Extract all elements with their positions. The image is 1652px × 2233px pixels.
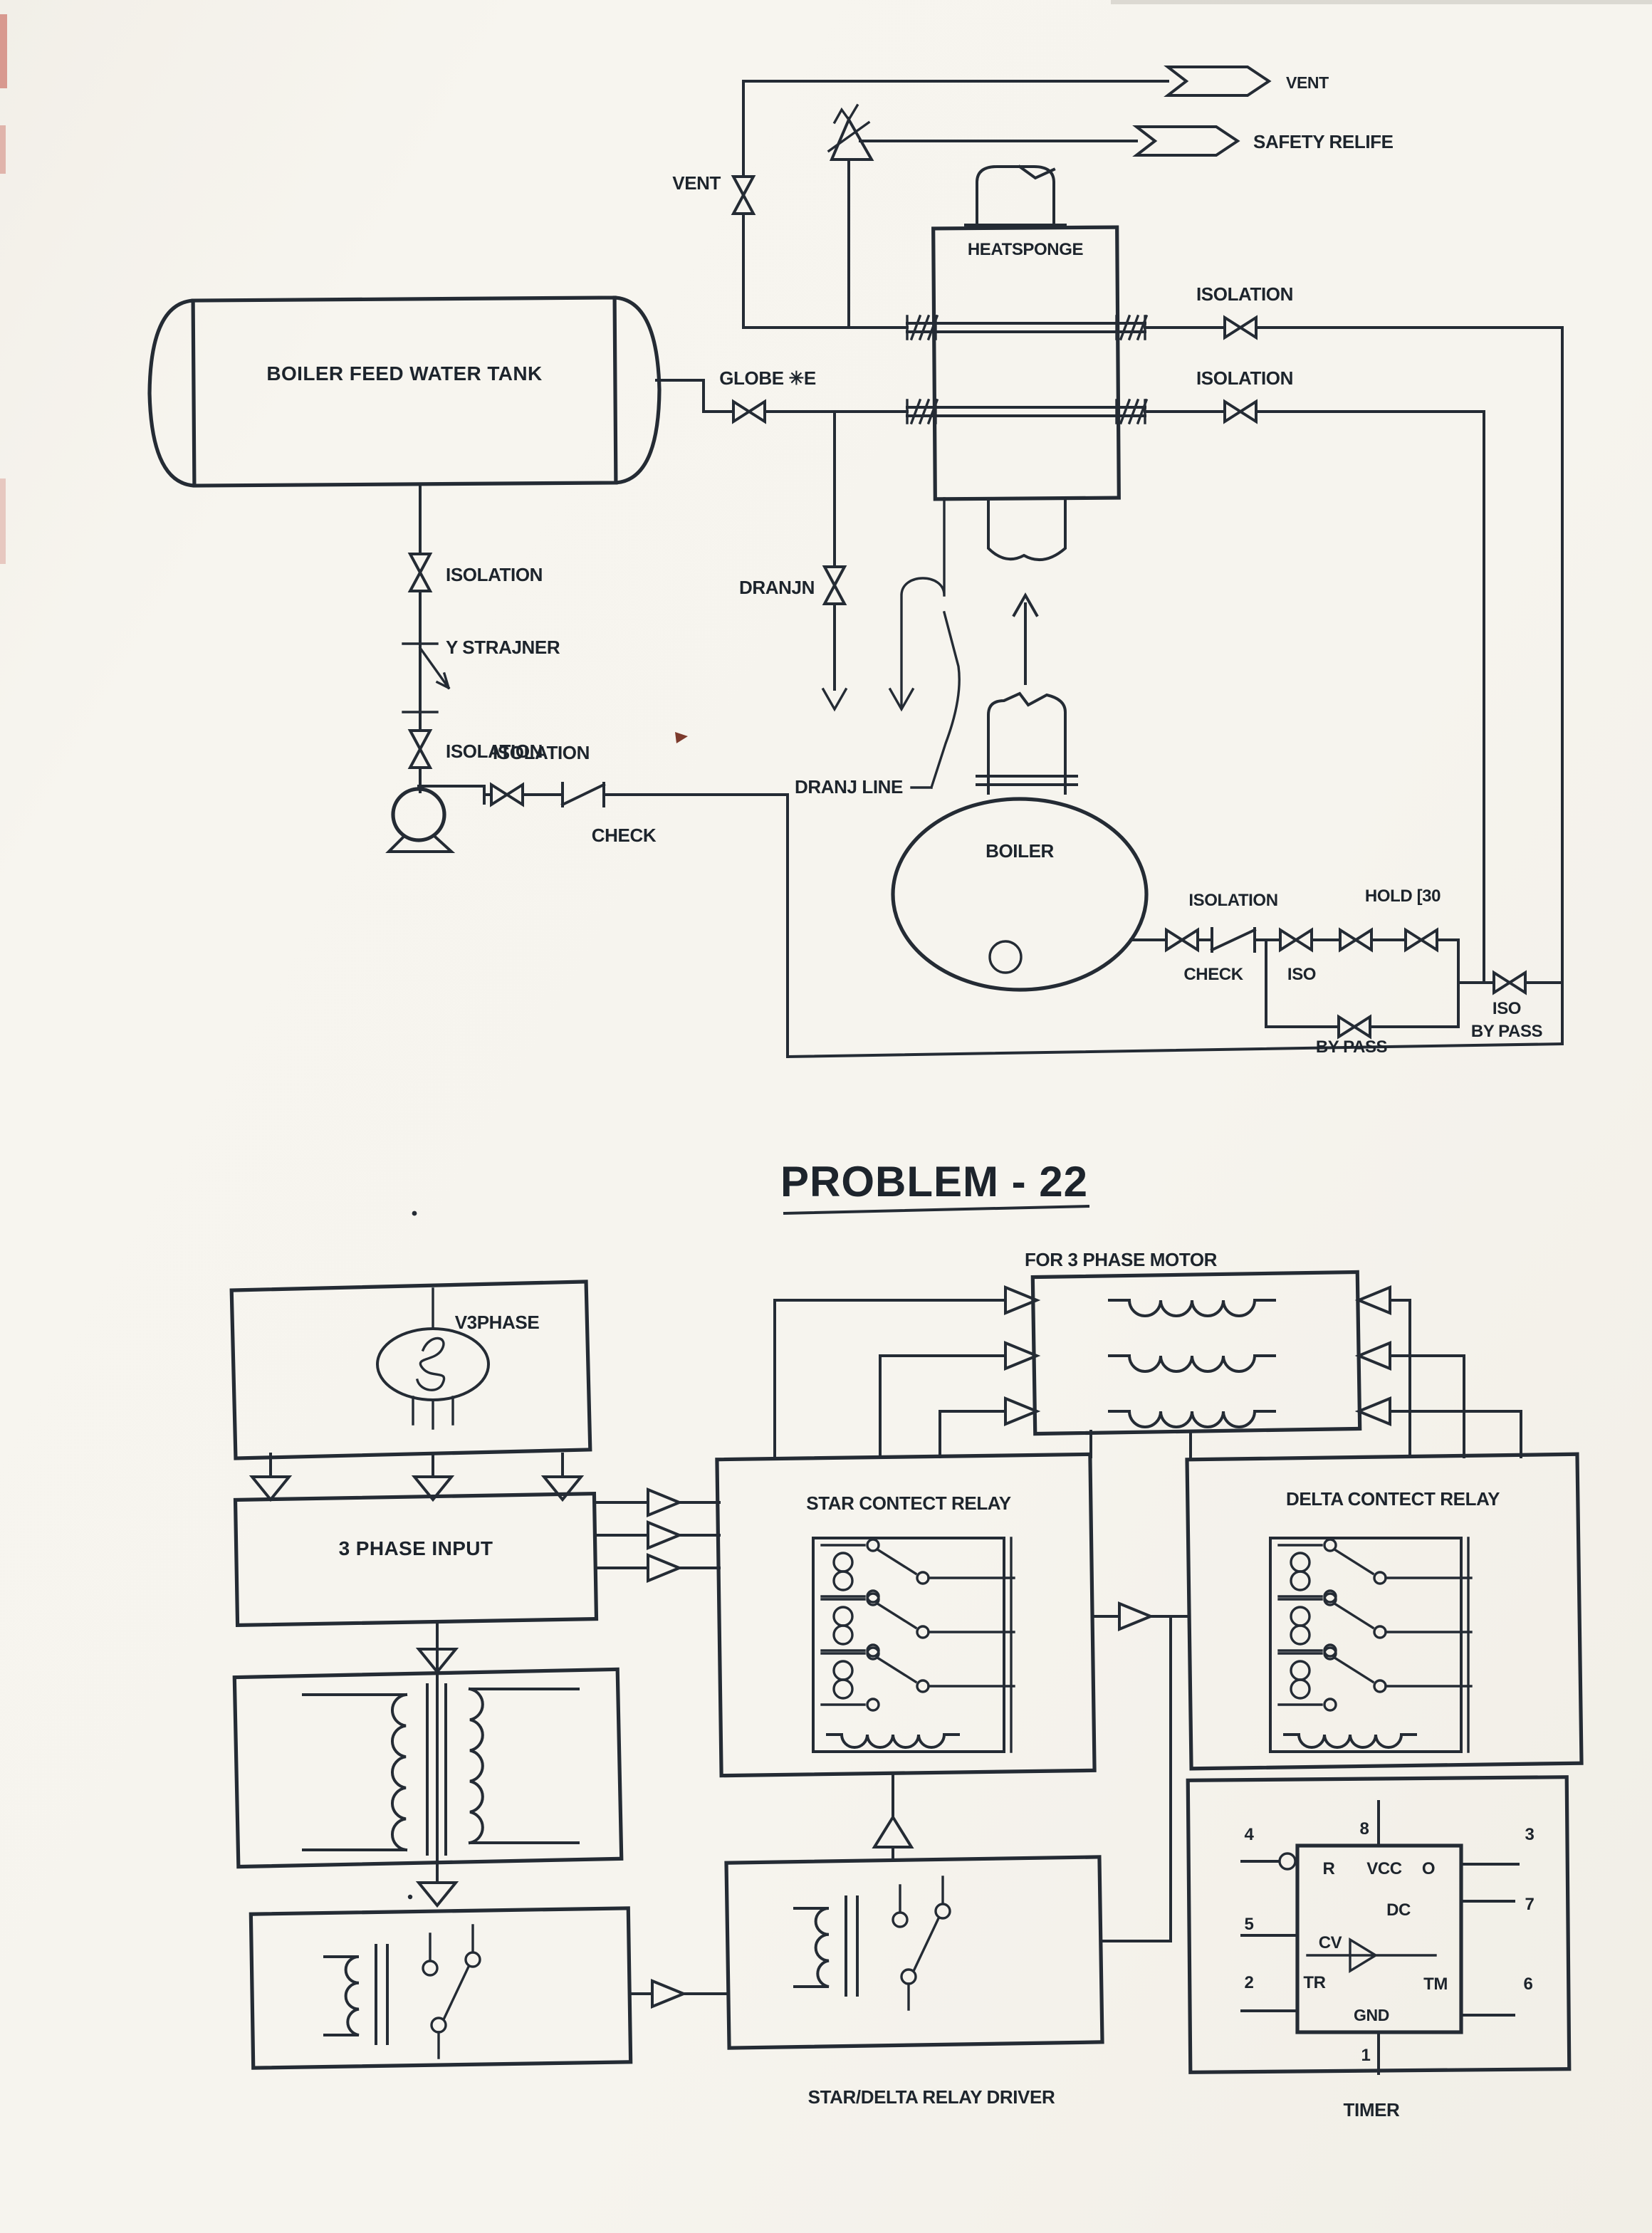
timer-pin-1: 1	[1361, 2046, 1371, 2065]
dranj-line-pipe	[890, 498, 959, 788]
timer-pin-6: 6	[1524, 1975, 1533, 1994]
heatsponge-label: HEATSPONGE	[968, 240, 1084, 259]
hold-label: HOLD [30	[1365, 887, 1441, 906]
boiler-vessel: BOILER	[893, 694, 1146, 990]
right-riser-pipes	[1484, 328, 1562, 1044]
timer-pin-4: 4	[1245, 1825, 1255, 1844]
check-valve-icon	[563, 783, 604, 806]
driver-label: STAR/DELTA RELAY DRIVER	[808, 2086, 1055, 2108]
y-strainer-label: Y STRAJNER	[446, 637, 560, 658]
flow-arrow-icon	[652, 1981, 684, 2007]
flow-arrow-icon	[1119, 1604, 1151, 1629]
motor-winding-icon	[1109, 1411, 1275, 1427]
isolation-valve-icon	[410, 554, 430, 591]
tank-label: BOILER FEED WATER TANK	[266, 362, 542, 385]
heatsponge-bottom-neck	[988, 498, 1065, 560]
star-delta-motor-diagram: FOR 3 PHASE MOTOR V3PHASE	[231, 1249, 1582, 2120]
bypass-label: BY PASS	[1316, 1037, 1388, 1057]
safety-relief-label: SAFETY RELIFE	[1253, 131, 1394, 152]
flow-arrow-icon	[648, 1555, 679, 1581]
outlet-iso-label: ISO	[1287, 965, 1316, 984]
isolation-valve-icon	[1225, 318, 1256, 338]
flow-arrow-icon	[1359, 1343, 1390, 1369]
motor-right-wires	[1390, 1300, 1521, 1457]
iso-bypass-valve-icon	[1494, 973, 1525, 993]
heatsponge-exchanger: HEATSPONGE	[934, 167, 1119, 560]
globe-valve-icon	[733, 402, 765, 422]
boiler-neck	[977, 694, 1077, 793]
timer-pin-wires	[1242, 1801, 1518, 2073]
pump-isolation-label: ISOLATION	[493, 742, 590, 763]
relay-driver-box-left	[251, 1908, 630, 2068]
vent-valve-label: VENT	[672, 172, 721, 194]
relay-coil-switch-icon	[325, 1925, 480, 2058]
motor-heading: FOR 3 PHASE MOTOR	[1025, 1249, 1218, 1270]
timer-vcc-label: VCC	[1366, 1859, 1402, 1878]
transformer-box	[234, 1669, 621, 1866]
delta-contact-relay-box: DELTA CONTECT RELAY	[1187, 1454, 1582, 1769]
dranj-line-label: DRANJ LINE	[795, 776, 903, 797]
star-delta-relay-driver-box	[726, 1857, 1102, 2048]
timer-label: TIMER	[1344, 2099, 1401, 2120]
timer-pin-5: 5	[1245, 1915, 1254, 1934]
dranjn-label: DRANJN	[739, 577, 815, 598]
iso-bypass-label-1: ISO	[1492, 999, 1521, 1018]
v3phase-source-box: V3PHASE	[231, 1282, 590, 1458]
motor-winding-icon	[1109, 1300, 1275, 1316]
flow-arrow-icon	[1005, 1398, 1037, 1424]
outlet-isolation-label: ISOLATION	[1188, 891, 1277, 910]
timer-output-label: O	[1422, 1859, 1435, 1878]
phase-input-label: 3 PHASE INPUT	[339, 1537, 493, 1559]
boiler-label: BOILER	[986, 840, 1054, 862]
timer-reset-label: R	[1323, 1859, 1335, 1878]
vent-header-label: VENT	[1286, 73, 1329, 92]
motor-winding-icon	[1109, 1356, 1275, 1371]
iso-valve-icon	[1280, 930, 1312, 950]
page-title: PROBLEM - 22	[780, 1158, 1088, 1206]
timer-gnd-label: GND	[1354, 2006, 1389, 2024]
isolation-valve-icon	[1225, 402, 1256, 422]
scanned-diagram-page: VENT VENT SAFETY RELIFE HEATSPONGE ISOLA…	[0, 0, 1652, 2233]
safety-arrow-icon	[1136, 127, 1238, 155]
isolation-valve-icon	[410, 731, 430, 768]
flow-arrow-icon	[1359, 1287, 1390, 1313]
bottom-manifold-pipe	[788, 1044, 1562, 1057]
feed-isolation1-label: ISOLATION	[446, 564, 543, 585]
lower-tube-flanges	[907, 400, 1146, 423]
hold-valve-icon	[1340, 930, 1371, 950]
up-flow-arrow-icon	[1014, 595, 1037, 684]
relay-contacts-icon	[813, 1538, 1014, 1752]
title-underline	[785, 1206, 1088, 1213]
globe-valve-label: GLOBE ✳E	[719, 367, 816, 389]
three-phase-input-box: 3 PHASE INPUT	[236, 1494, 597, 1626]
isolation-valve-icon	[1166, 930, 1198, 950]
lower-tube-pipe	[907, 407, 1484, 416]
heatsponge-top-cap	[966, 167, 1065, 228]
transformer-icon	[303, 1685, 578, 1854]
isolation-valve-icon	[491, 785, 523, 805]
drain-valve-icon	[825, 567, 845, 604]
timer-pin-8: 8	[1360, 1819, 1369, 1839]
upper-tube-flanges	[907, 316, 1146, 339]
timer-tm-label: TM	[1423, 1975, 1448, 1994]
relay-coil-switch-icon	[795, 1877, 950, 2009]
timer-pin-2: 2	[1245, 1973, 1254, 1992]
flow-arrow-icon	[1359, 1398, 1390, 1424]
check-valve-icon	[1212, 929, 1255, 951]
boiler-feed-water-tank: BOILER FEED WATER TANK	[149, 298, 660, 486]
down-arrow-icon	[823, 689, 846, 709]
hs-isolation-top-label: ISOLATION	[1196, 283, 1293, 305]
star-relay-label: STAR CONTECT RELAY	[806, 1492, 1011, 1514]
pump-check-label: CHECK	[592, 825, 657, 846]
down-arrow-icon	[419, 1883, 456, 1905]
down-arrow-icon	[252, 1477, 289, 1500]
v3phase-label: V3PHASE	[455, 1312, 540, 1333]
pump-icon	[389, 786, 484, 852]
hs-isolation-bottom-label: ISOLATION	[1196, 367, 1293, 389]
y-strainer-icon	[403, 644, 449, 712]
timer-dc-label: DC	[1386, 1900, 1411, 1920]
vent-pipe	[743, 81, 1168, 328]
timer-pin-7: 7	[1525, 1895, 1535, 1914]
outlet-check-label: CHECK	[1183, 965, 1243, 984]
hold-valve-icon	[1406, 930, 1437, 950]
ink-speck	[675, 732, 688, 743]
timer-box: 4 8 3 5 7 2 6 1 R VCC O DC CV TR TM GND	[1188, 1777, 1569, 2073]
relay-contacts-icon	[1270, 1538, 1471, 1752]
star-delta-link-wires	[1092, 1616, 1189, 1941]
up-arrow-icon	[874, 1817, 911, 1847]
generator-icon	[377, 1289, 488, 1428]
safety-pipe	[849, 141, 1136, 328]
timer-tr-label: TR	[1303, 1973, 1325, 1992]
flow-arrow-icon	[648, 1490, 679, 1515]
vent-arrow-icon	[1168, 67, 1269, 95]
delta-relay-label: DELTA CONTECT RELAY	[1286, 1488, 1500, 1510]
bypass-valve-icon	[1339, 1017, 1370, 1037]
timer-pin-3: 3	[1525, 1825, 1535, 1844]
vent-valve-icon	[733, 177, 753, 214]
iso-bypass-label-2: BY PASS	[1471, 1022, 1543, 1041]
timer-cv-label: CV	[1319, 1933, 1342, 1952]
three-phase-motor-box	[1032, 1272, 1359, 1433]
boiler-feed-pid: VENT VENT SAFETY RELIFE HEATSPONGE ISOLA…	[149, 67, 1562, 1057]
safety-relief-valve-icon	[829, 105, 872, 159]
star-contact-relay-box: STAR CONTECT RELAY	[717, 1454, 1094, 1775]
inverter-bubble-icon	[1280, 1853, 1295, 1869]
flow-arrow-icon	[648, 1522, 679, 1548]
